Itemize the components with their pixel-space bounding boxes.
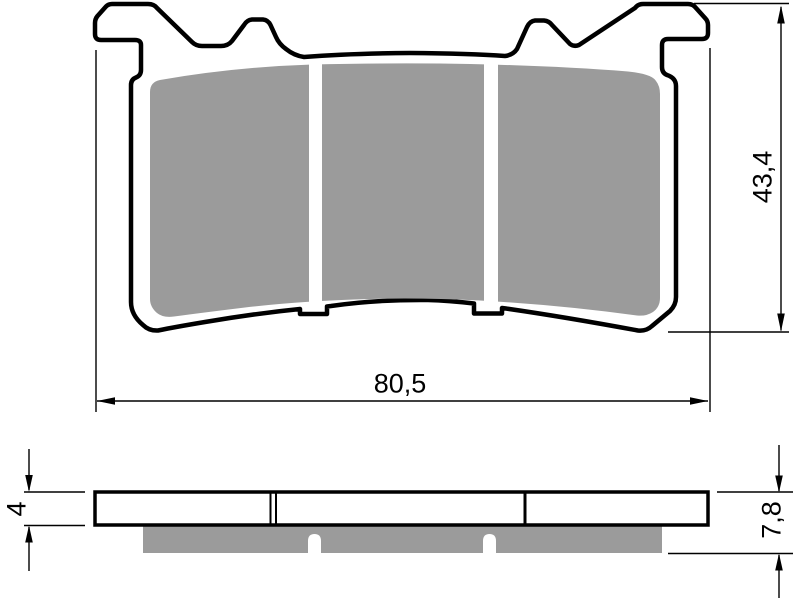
arrow-right [690, 397, 708, 405]
arrow-left [97, 397, 115, 405]
friction-groove-right [484, 61, 498, 303]
dimension-height: 43,4 [668, 4, 789, 333]
arrow-down [775, 476, 783, 493]
dimension-height-label: 43,4 [747, 151, 777, 204]
brake-pad-technical-drawing: 80,5 43,4 4 7 [0, 0, 800, 600]
arrow-down [777, 314, 785, 332]
pad-side-view [95, 492, 708, 554]
pad-top-view [95, 4, 708, 331]
arrow-down [25, 475, 33, 492]
dimension-plate-thickness: 4 [1, 449, 85, 571]
side-friction-material [143, 526, 662, 554]
arrow-up [777, 6, 785, 24]
friction-groove-left [309, 61, 322, 305]
friction-material [150, 63, 660, 316]
side-backplate [95, 492, 708, 525]
arrow-up [775, 554, 783, 571]
arrow-up [25, 526, 33, 543]
dimension-plate-thickness-label: 4 [1, 501, 31, 516]
side-groove-left [308, 534, 321, 554]
drawing-canvas: 80,5 43,4 4 7 [0, 0, 800, 600]
side-groove-right [483, 534, 496, 554]
dimension-total-thickness-label: 7,8 [756, 501, 786, 539]
dimension-width-label: 80,5 [374, 368, 427, 398]
